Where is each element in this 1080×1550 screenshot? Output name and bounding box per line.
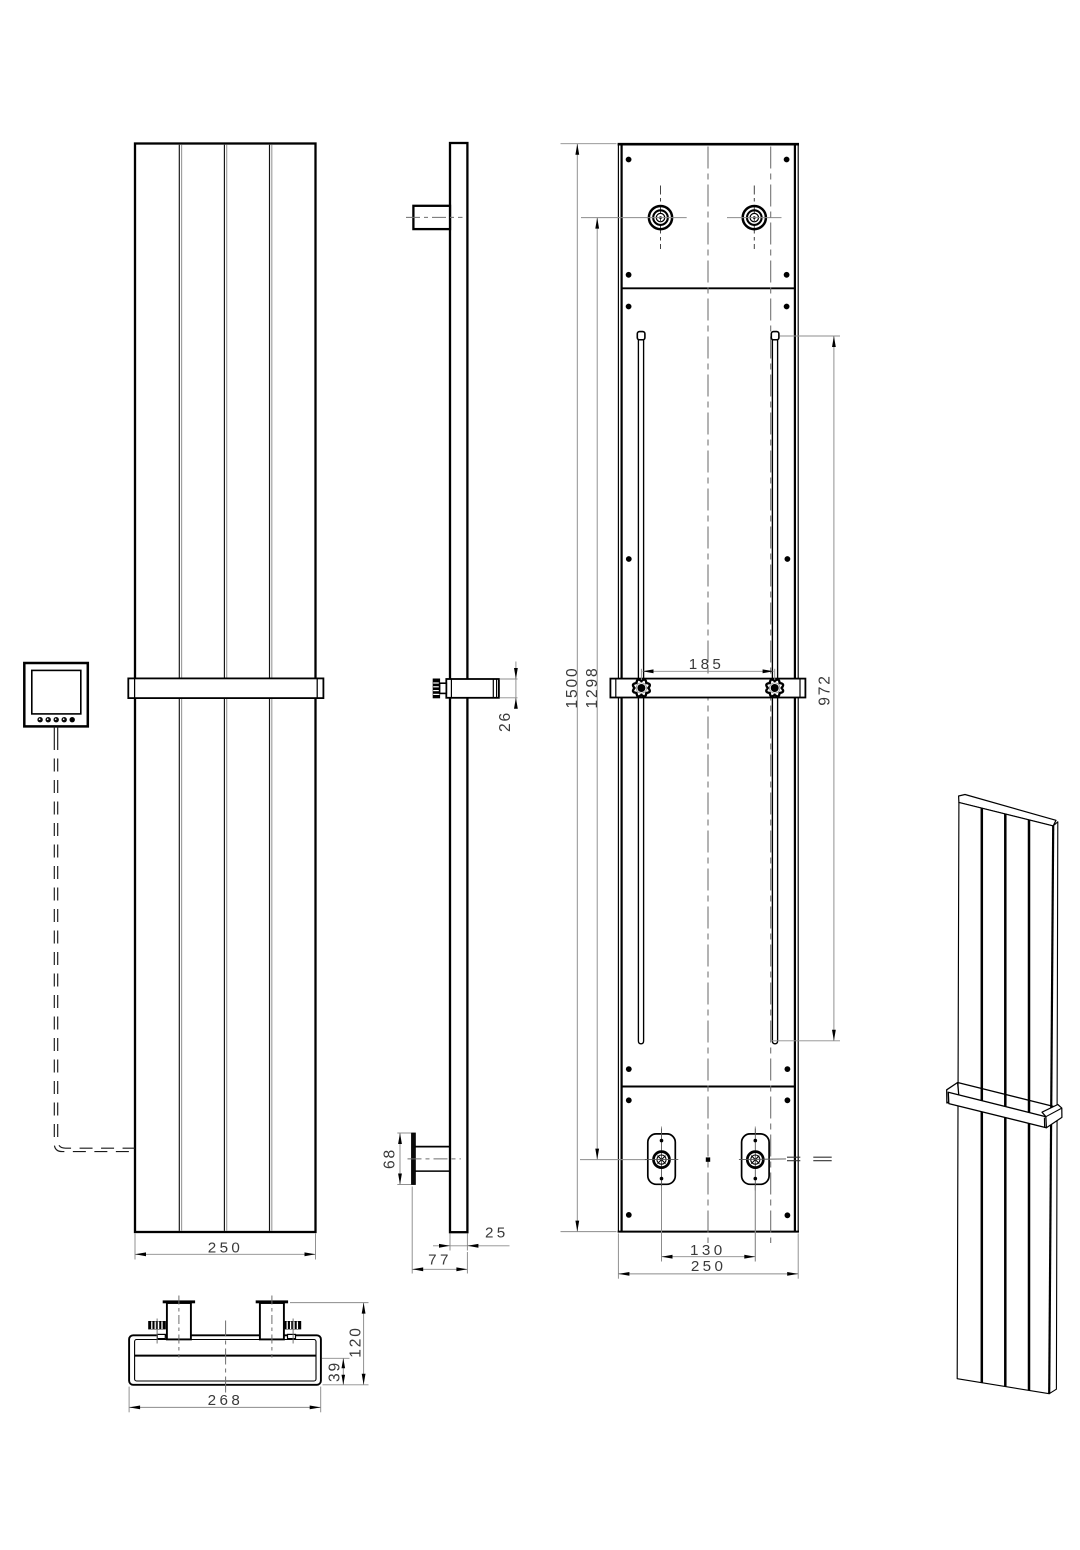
- svg-text:268: 268: [208, 1392, 244, 1409]
- svg-text:1500: 1500: [564, 667, 581, 709]
- svg-text:39: 39: [327, 1361, 344, 1382]
- svg-text:185: 185: [689, 656, 725, 673]
- svg-text:77: 77: [428, 1251, 452, 1268]
- svg-text:120: 120: [347, 1326, 364, 1357]
- svg-text:250: 250: [208, 1240, 244, 1257]
- svg-text:25: 25: [485, 1225, 509, 1242]
- svg-text:26: 26: [497, 711, 514, 732]
- svg-text:68: 68: [381, 1148, 398, 1169]
- svg-text:130: 130: [690, 1242, 726, 1259]
- svg-text:972: 972: [817, 674, 834, 705]
- svg-text:1298: 1298: [584, 667, 601, 709]
- svg-text:250: 250: [691, 1258, 727, 1275]
